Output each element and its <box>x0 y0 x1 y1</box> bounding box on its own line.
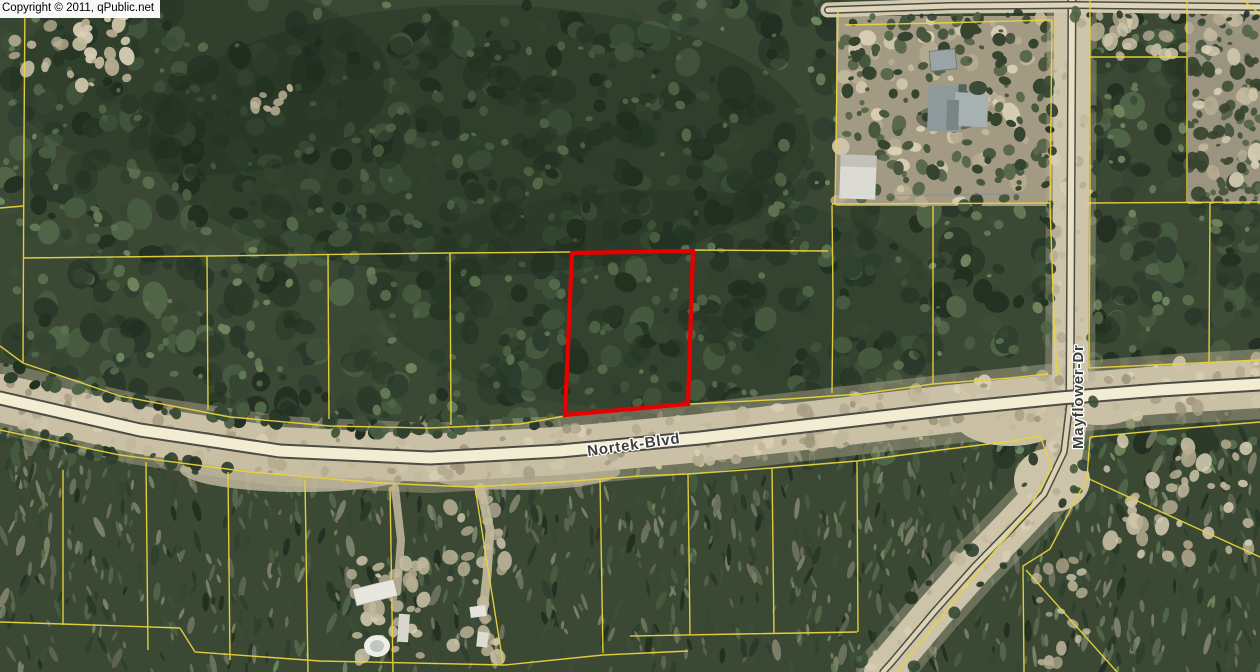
map-canvas: Nortek-Blvd Mayflower-Dr <box>0 0 1260 672</box>
white-outbuilding <box>839 154 877 199</box>
copyright-watermark: Copyright © 2011, qPublic.net <box>0 0 160 18</box>
round-structure-center <box>370 640 384 652</box>
tree-over-house <box>969 81 987 95</box>
aerial-parcel-map[interactable]: Nortek-Blvd Mayflower-Dr Copyright © 201… <box>0 0 1260 672</box>
shed-structure <box>929 49 957 72</box>
road-label-mayflower-dr: Mayflower-Dr <box>1070 344 1087 449</box>
small-white-structure <box>469 605 486 618</box>
small-white-structure <box>476 632 489 648</box>
small-shed <box>397 614 410 643</box>
mayflower-roadbed <box>1070 0 1072 398</box>
